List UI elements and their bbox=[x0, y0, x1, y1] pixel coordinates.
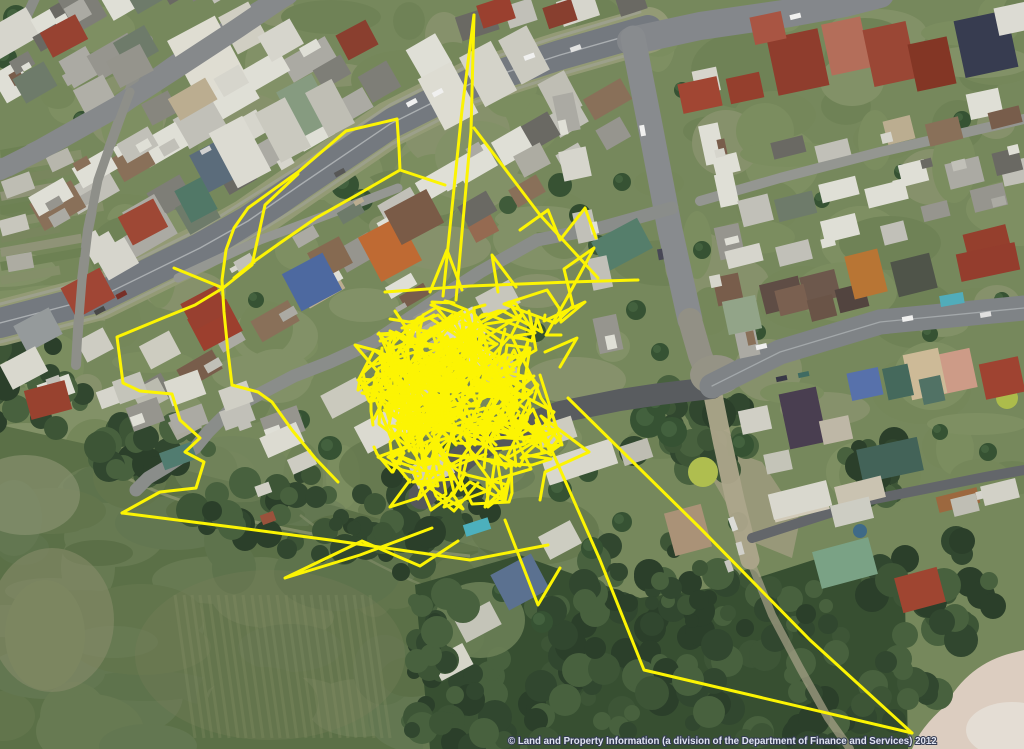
svg-text:© Land and Property Informatio: © Land and Property Information (a divis… bbox=[508, 736, 937, 747]
